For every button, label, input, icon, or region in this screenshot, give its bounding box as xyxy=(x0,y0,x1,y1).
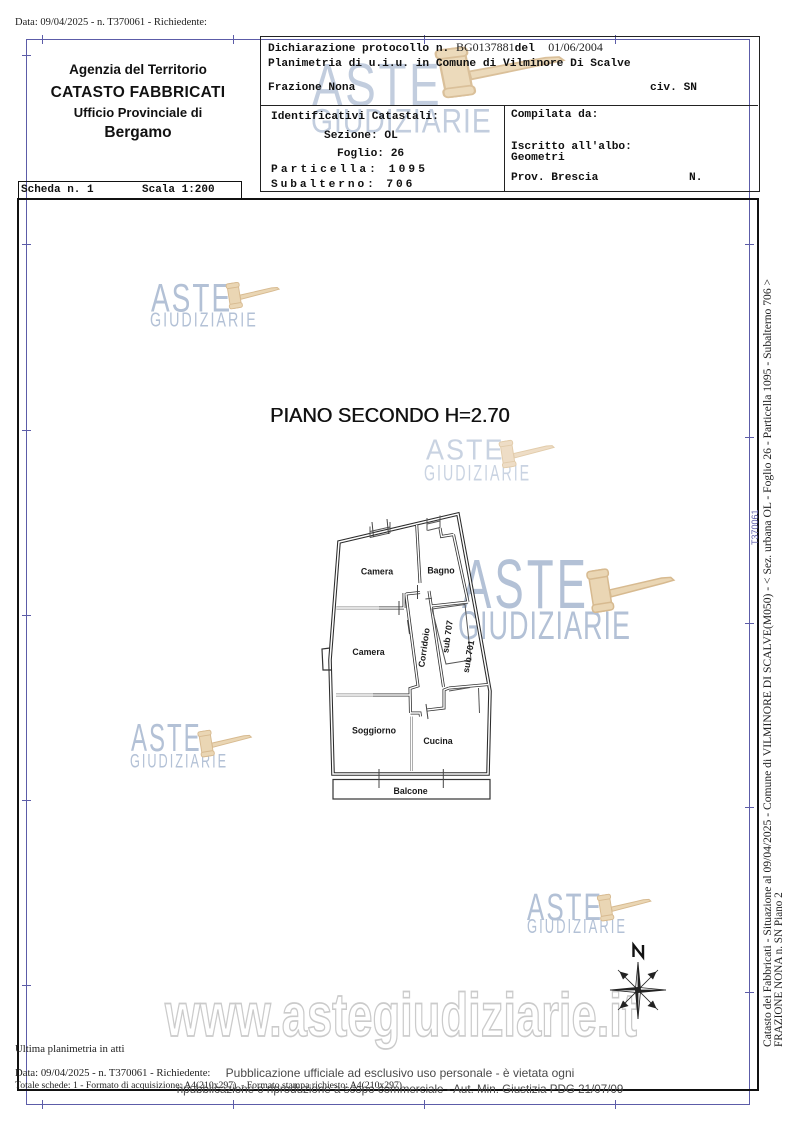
svg-text:Corridoio: Corridoio xyxy=(416,627,431,668)
svg-text:www.astegiudiziarie.it: www.astegiudiziarie.it xyxy=(164,981,637,1049)
svg-text:Camera: Camera xyxy=(352,647,384,657)
svg-text:Bagno: Bagno xyxy=(427,566,455,576)
svg-text:sub 701: sub 701 xyxy=(461,639,477,673)
svg-text:Cucina: Cucina xyxy=(423,736,452,746)
svg-text:Camera: Camera xyxy=(361,567,393,577)
svg-text:sub 707: sub 707 xyxy=(440,620,454,654)
svg-text:Soggiorno: Soggiorno xyxy=(352,726,397,736)
svg-text:Balcone: Balcone xyxy=(393,786,427,796)
